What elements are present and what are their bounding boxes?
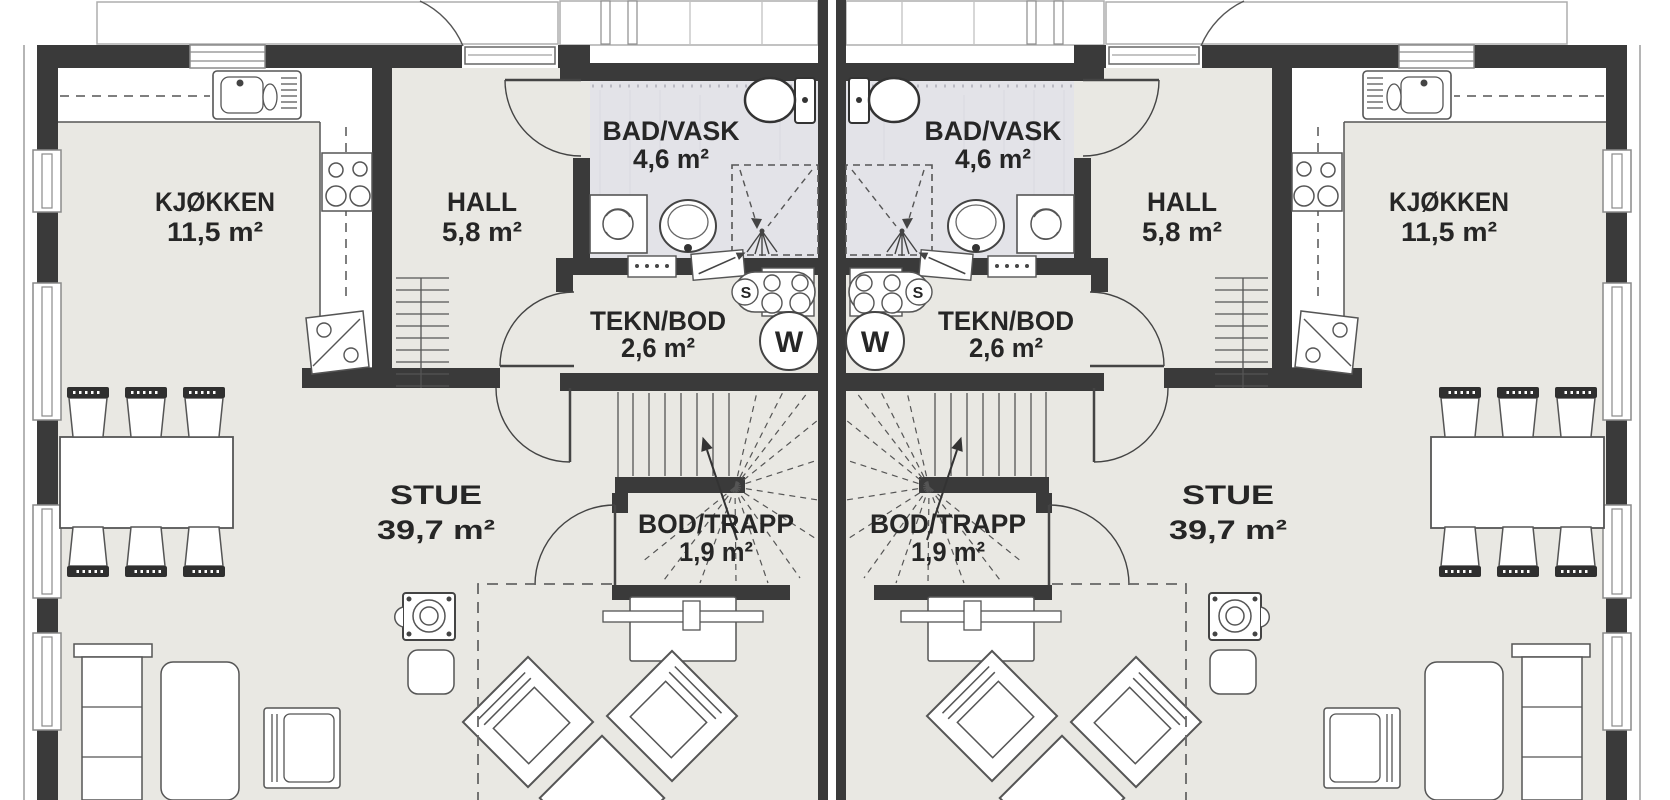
wall-teknbod-bottom <box>560 373 818 391</box>
water-heater-label-right: W <box>861 326 890 359</box>
room-area-stue-left: 39,7 m² <box>377 515 495 545</box>
room-label-stue-left: STUE <box>390 480 482 510</box>
vent-grille <box>628 256 676 277</box>
stool <box>408 650 454 694</box>
drain-label-left: S <box>741 285 752 302</box>
bathroom-sink <box>660 200 716 252</box>
room-area-stue-right: 39,7 m² <box>1169 515 1287 545</box>
room-label-kjokken-right: KJØKKEN <box>1389 187 1509 217</box>
room-area-kjokken-left: 11,5 m² <box>167 217 263 247</box>
stair-landing-bar <box>615 477 745 493</box>
room-label-hall-right: HALL <box>1147 187 1217 217</box>
hatch-symbol <box>691 250 748 281</box>
sideboard <box>74 644 152 800</box>
toilet <box>745 78 815 123</box>
room-area-hall-left: 5,8 m² <box>442 217 522 247</box>
porch-post <box>628 1 637 44</box>
room-area-bodtrapp-right: 1,9 m² <box>911 537 985 567</box>
cooktop <box>322 153 372 211</box>
armchair <box>264 708 340 788</box>
floor-plan-canvas: KJØKKEN 11,5 m² HALL 5,8 m² BAD/VASK 4,6… <box>0 0 1670 800</box>
porch-outline <box>97 2 558 44</box>
side-table <box>161 662 239 800</box>
room-label-badvask-right: BAD/VASK <box>925 116 1062 146</box>
dishwasher <box>306 311 369 374</box>
room-label-hall-left: HALL <box>447 187 517 217</box>
water-heater-label-left: W <box>775 326 804 359</box>
room-label-badvask-left: BAD/VASK <box>603 116 740 146</box>
room-area-teknbod-right: 2,6 m² <box>969 333 1043 363</box>
room-label-teknbod-right: TEKN/BOD <box>938 306 1074 336</box>
room-area-kjokken-right: 11,5 m² <box>1401 217 1497 247</box>
porch-post <box>601 1 610 44</box>
dining-table <box>60 437 233 528</box>
wood-stove <box>395 593 455 640</box>
drain-label-right: S <box>913 285 924 302</box>
room-area-teknbod-left: 2,6 m² <box>621 333 695 363</box>
wall-kitchen-hall <box>372 68 392 388</box>
entry-porch <box>560 1 818 45</box>
wall-party <box>818 0 828 800</box>
room-label-bodtrapp-right: BOD/TRAPP <box>870 509 1026 539</box>
room-area-bodtrapp-left: 1,9 m² <box>679 537 753 567</box>
window-kitchen-top <box>190 45 265 68</box>
room-area-badvask-right: 4,6 m² <box>955 144 1031 174</box>
kitchen-sink <box>213 71 301 119</box>
room-area-badvask-left: 4,6 m² <box>633 144 709 174</box>
wall-bath-hall <box>573 158 590 258</box>
room-label-bodtrapp-left: BOD/TRAPP <box>638 509 794 539</box>
floor-plan-page: KJØKKEN 11,5 m² HALL 5,8 m² BAD/VASK 4,6… <box>0 0 1670 800</box>
washing-machine <box>590 195 647 253</box>
room-label-kjokken-left: KJØKKEN <box>155 187 275 217</box>
room-area-hall-right: 5,8 m² <box>1142 217 1222 247</box>
room-label-stue-right: STUE <box>1182 480 1274 510</box>
room-label-teknbod-left: TEKN/BOD <box>590 306 726 336</box>
